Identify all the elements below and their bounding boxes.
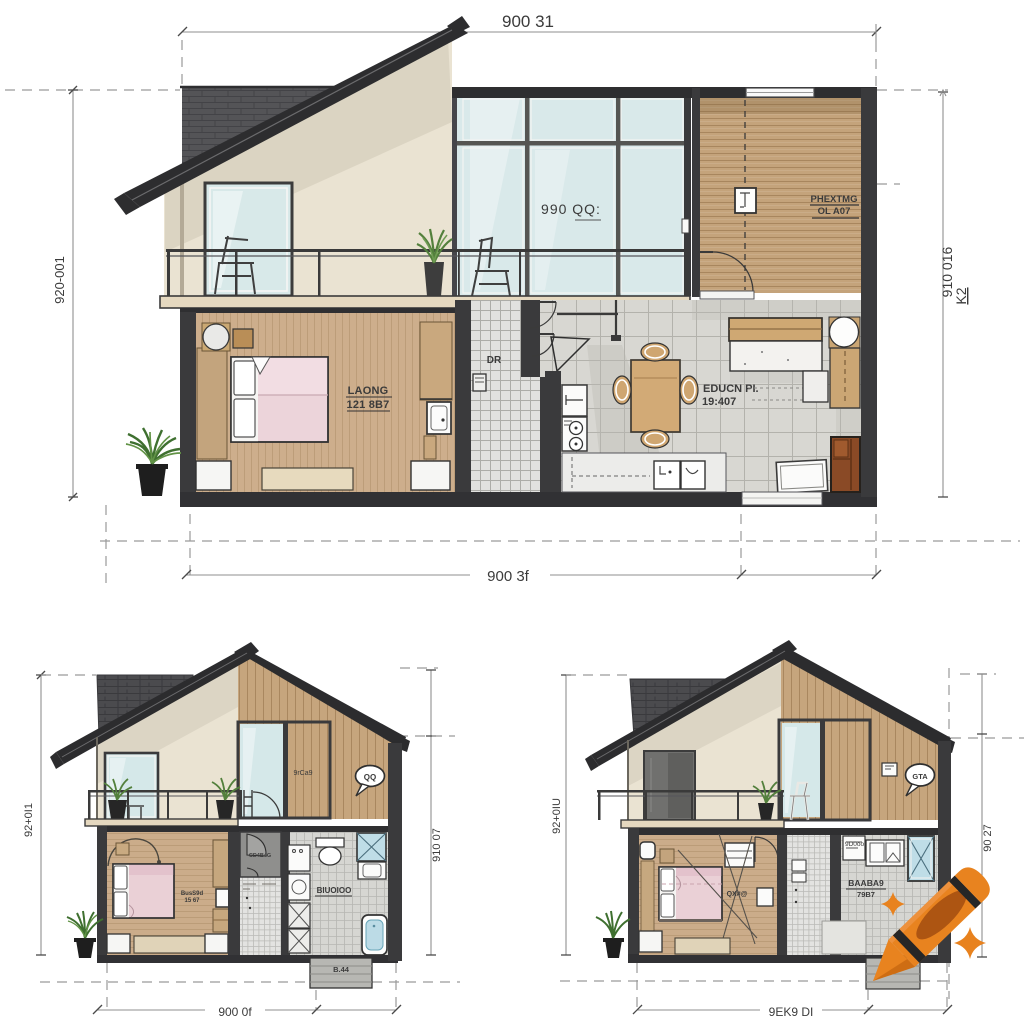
svg-text:QX#@: QX#@	[727, 891, 748, 898]
svg-text:BusS9d: BusS9d	[181, 891, 204, 897]
svg-text:BAABA9: BAABA9	[848, 878, 884, 888]
svg-text:DR: DR	[487, 355, 502, 366]
svg-text:92+0I1: 92+0I1	[23, 803, 35, 837]
svg-text:EDUCN PI.: EDUCN PI.	[703, 383, 759, 395]
svg-text:121 8B7: 121 8B7	[347, 399, 390, 411]
svg-text:910 07: 910 07	[431, 828, 443, 862]
svg-text:9D0oo: 9D0oo	[845, 841, 865, 848]
svg-text:19:407: 19:407	[702, 396, 736, 408]
svg-text:BIUOIOO: BIUOIOO	[317, 886, 352, 895]
svg-text:900 31: 900 31	[502, 12, 554, 31]
svg-text:QQ: QQ	[364, 773, 376, 782]
svg-text:92+0IU: 92+0IU	[551, 798, 563, 834]
svg-text:90 27: 90 27	[982, 824, 994, 852]
svg-text:B.44: B.44	[333, 965, 350, 974]
svg-text:GTA: GTA	[912, 772, 928, 781]
svg-text:990 QQ:: 990 QQ:	[541, 201, 601, 217]
svg-text:15 67: 15 67	[184, 898, 200, 904]
svg-text:920-001: 920-001	[52, 256, 67, 304]
svg-text:OL A07: OL A07	[818, 206, 851, 217]
svg-text:9rCa9: 9rCa9	[293, 770, 312, 777]
svg-text:79B7: 79B7	[857, 890, 875, 899]
svg-text:K2: K2	[953, 287, 969, 304]
svg-text:CD4B4G: CD4B4G	[249, 853, 271, 859]
svg-text:900 3f: 900 3f	[487, 568, 530, 585]
svg-text:9EK9 DI: 9EK9 DI	[769, 1005, 814, 1019]
svg-text:900 0f: 900 0f	[218, 1005, 252, 1019]
svg-text:LAONG: LAONG	[348, 385, 389, 397]
svg-text:PHEXTMG: PHEXTMG	[811, 194, 858, 205]
